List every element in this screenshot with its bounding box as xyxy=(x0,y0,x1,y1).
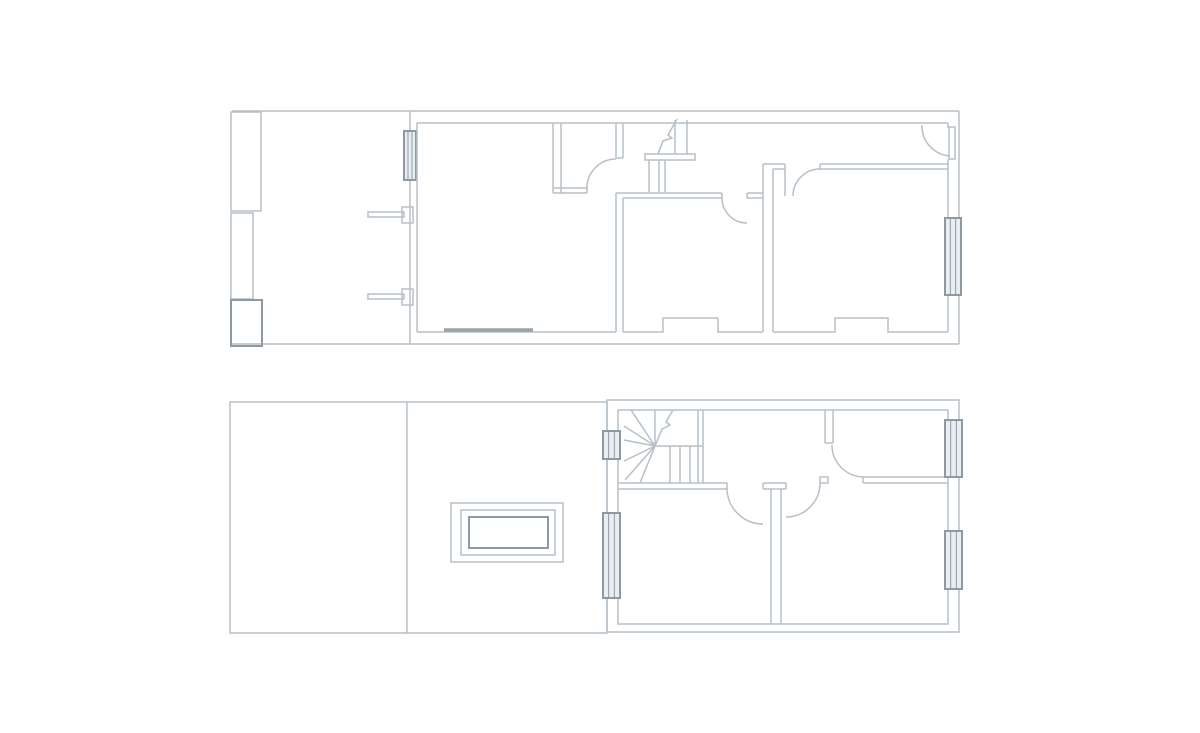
garden-store xyxy=(231,213,253,299)
door-arc xyxy=(832,445,863,477)
lower-floor-plan xyxy=(230,400,962,633)
window-frame xyxy=(945,531,962,589)
window xyxy=(945,531,962,589)
garden-store xyxy=(231,300,262,346)
wall-inner xyxy=(618,410,948,624)
skylight xyxy=(469,517,548,548)
stair-winder xyxy=(625,446,655,480)
floorplan-drawing xyxy=(0,0,1200,733)
floorplan-page xyxy=(0,0,1200,733)
window-frame xyxy=(945,218,961,295)
stair-break-line xyxy=(658,119,677,154)
fence-bar xyxy=(368,212,404,217)
window-frame xyxy=(603,513,620,598)
door-jamb xyxy=(820,477,828,483)
chimney-breast xyxy=(623,318,763,332)
door-arc xyxy=(793,169,820,196)
garden-store xyxy=(231,112,261,211)
window xyxy=(404,131,416,180)
door-arc xyxy=(727,488,763,524)
window xyxy=(945,420,962,477)
door-arc xyxy=(587,159,616,188)
stair-landing xyxy=(645,154,695,160)
window xyxy=(945,218,961,295)
door-arc xyxy=(722,198,747,223)
window xyxy=(603,513,620,598)
window xyxy=(603,431,620,459)
stair-break-line xyxy=(655,410,673,446)
fence-bar xyxy=(368,294,404,299)
window-frame xyxy=(945,420,962,477)
door-leaf xyxy=(949,127,955,159)
chimney-breast xyxy=(773,318,948,332)
skylight xyxy=(451,503,563,562)
upper-floor-plan xyxy=(231,111,961,346)
window-frame xyxy=(603,431,620,459)
window-frame xyxy=(404,131,416,180)
door-arc xyxy=(786,483,820,517)
roof-outline xyxy=(230,402,607,633)
stair-winder xyxy=(631,410,655,446)
door-arc xyxy=(922,125,950,156)
